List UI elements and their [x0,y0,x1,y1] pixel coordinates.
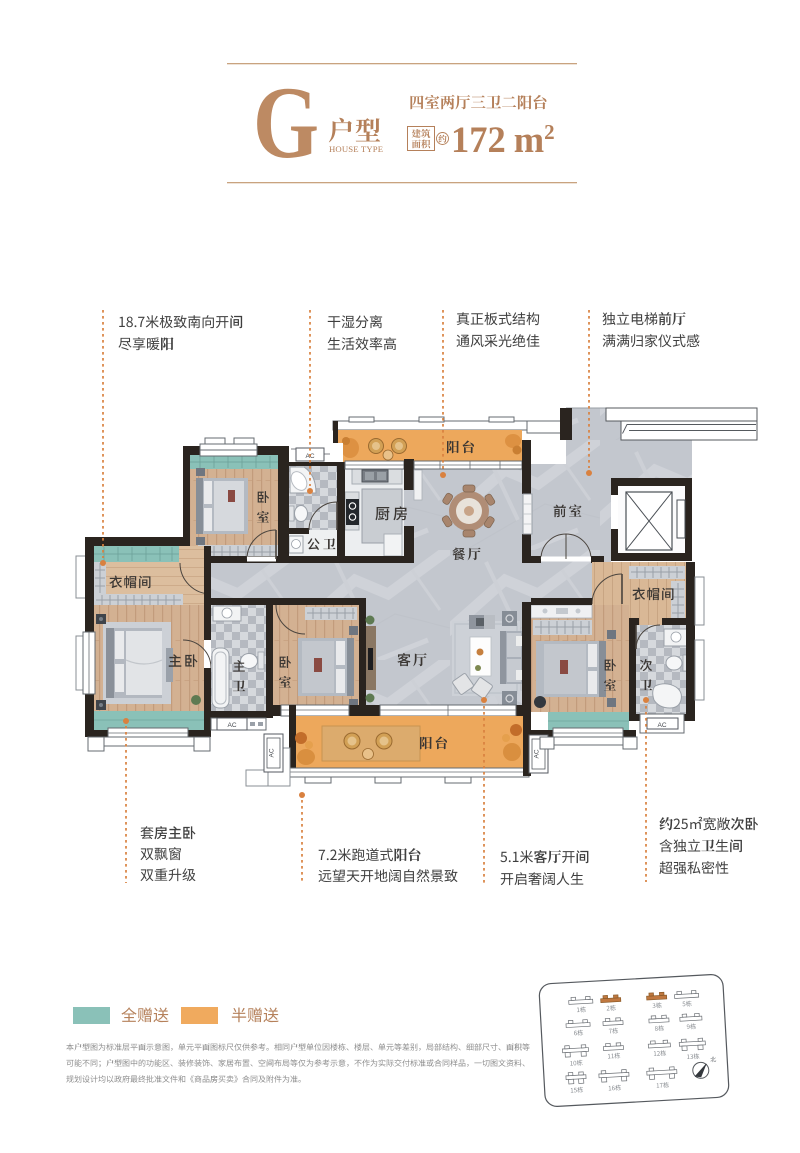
svg-text:AC: AC [657,722,666,729]
svg-text:AC: AC [534,749,541,758]
svg-text:G: G [253,66,319,180]
svg-text:AC: AC [269,748,276,757]
svg-text:AC: AC [227,722,236,729]
svg-text:HOUSE TYPE: HOUSE TYPE [329,144,383,154]
svg-text:172m2: 172m2 [451,119,555,160]
